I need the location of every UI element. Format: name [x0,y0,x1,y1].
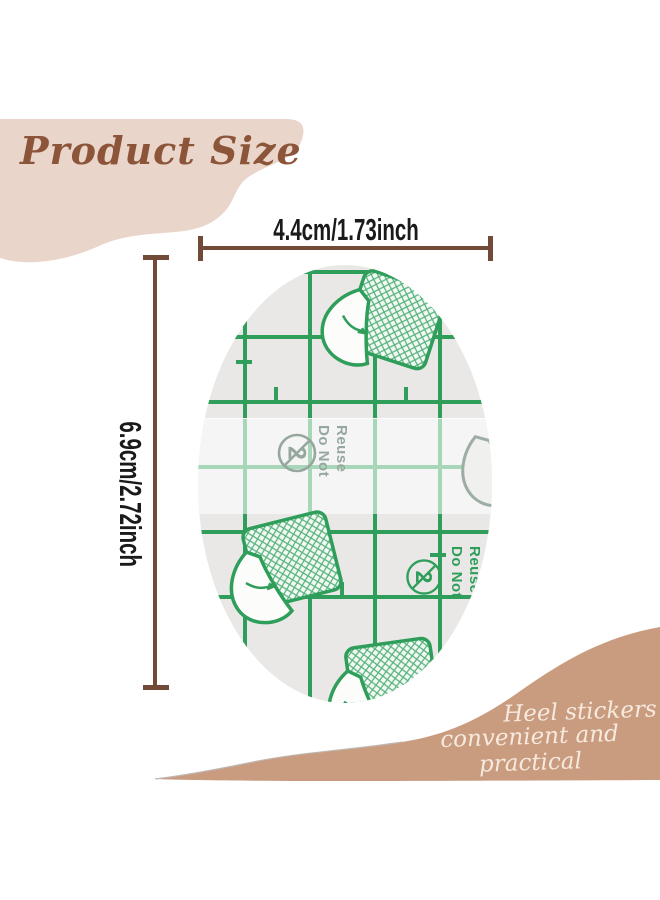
height-dimension-bottom-cap [143,685,169,690]
height-dimension-top-cap [143,255,169,260]
peel-patch-icon [314,265,448,386]
width-dimension-left-cap [198,236,203,261]
do-not-reuse-prohibition-icon [279,435,315,471]
peel-patch-icon [320,637,442,703]
sticker-image: 2 Do Not Reuse Do Not Reuse [198,265,492,703]
sticker-print-icons: 2 [198,265,492,703]
width-dimension-right-cap [488,236,493,261]
do-not-label-line2: Reuse [332,425,350,477]
height-dimension-label: 6.9cm/2.72inch [114,421,148,566]
peel-patch-icon-faded [452,427,492,514]
height-dimension-line [153,258,157,688]
width-dimension-label: 4.4cm/1.73inch [250,212,443,248]
footer-tagline-line2: convenient and practical [399,719,660,780]
do-not-label-line2: Reuse [465,546,483,598]
do-not-label-line1: Do Not [447,546,465,598]
do-not-reuse-label-bottom: Do Not Reuse [447,546,483,598]
page-title: Product Size [20,128,320,173]
width-dimension-line [200,246,491,250]
peel-patch-icon [217,510,347,630]
do-not-reuse-label-center: Do Not Reuse [314,425,350,477]
do-not-reuse-prohibition-icon [407,560,440,593]
do-not-label-line1: Do Not [314,425,332,477]
product-size-diagram: Product Size 4.4cm/1.73inch 6.9cm/2.72in… [0,0,660,900]
